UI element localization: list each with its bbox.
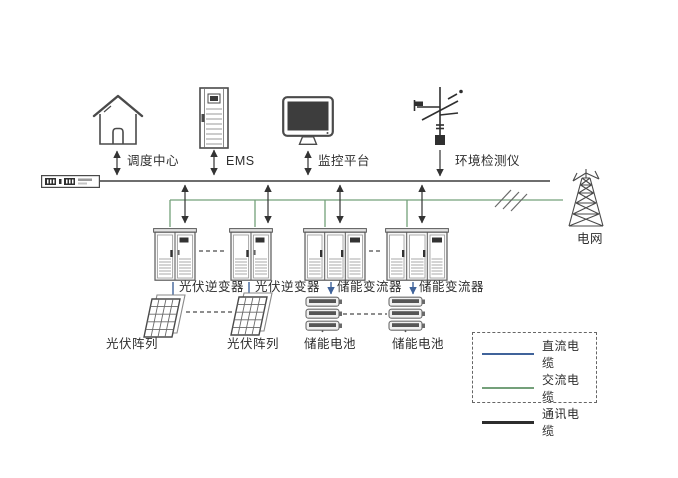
weather-station-icon: [415, 87, 463, 145]
monitor-icon: [283, 97, 333, 144]
pv-inverter-icon: [230, 229, 273, 281]
ems-label: EMS: [226, 154, 255, 168]
ac-bus: [170, 200, 563, 227]
monitoring-platform-label: 监控平台: [318, 154, 370, 168]
storage-converter-icon: [386, 229, 449, 281]
solar-panel-icon: [144, 295, 185, 337]
diagram-canvas: 调度中心 EMS 监控平台 环境检测仪 电网 光伏逆变器 光伏逆变器 储能变流器…: [0, 0, 678, 478]
legend-box: 直流电缆 交流电缆 通讯电缆: [472, 332, 597, 403]
pv-inverter-label: 光伏逆变器: [255, 280, 320, 294]
legend-label: 交流电缆: [542, 371, 587, 405]
battery-stack-icon: [306, 297, 342, 332]
solar-panel-icon: [231, 293, 272, 335]
storage-converter-label: 储能变流器: [337, 280, 402, 294]
pv-array-label: 光伏阵列: [227, 337, 279, 351]
storage-converter-label: 储能变流器: [419, 280, 484, 294]
power-grid-label: 电网: [577, 232, 603, 246]
legend-label: 直流电缆: [542, 337, 587, 371]
legend-item-dc: 直流电缆: [482, 337, 587, 371]
environment-detector-label: 环境检测仪: [455, 154, 520, 168]
storage-battery-label: 储能电池: [392, 337, 444, 351]
pv-array-label: 光伏阵列: [106, 337, 158, 351]
dc-cable-swatch: [482, 353, 534, 355]
comm-arrows-cabinets: [185, 185, 422, 223]
battery-stack-icon: [389, 297, 425, 332]
legend-item-comm: 通讯电缆: [482, 405, 587, 439]
storage-converter-icon: [304, 229, 367, 281]
storage-battery-label: 储能电池: [304, 337, 356, 351]
dispatch-center-label: 调度中心: [127, 154, 179, 168]
legend-label: 通讯电缆: [542, 405, 587, 439]
transmission-tower-icon: [569, 169, 603, 226]
house-icon: [94, 96, 142, 144]
pv-inverter-label: 光伏逆变器: [179, 280, 244, 294]
server-rack-icon: [200, 88, 228, 148]
comm-cable-swatch: [482, 421, 534, 424]
pv-inverter-icon: [154, 229, 197, 281]
ac-cable-swatch: [482, 387, 534, 389]
meter-icon: [42, 176, 100, 188]
legend-item-ac: 交流电缆: [482, 371, 587, 405]
